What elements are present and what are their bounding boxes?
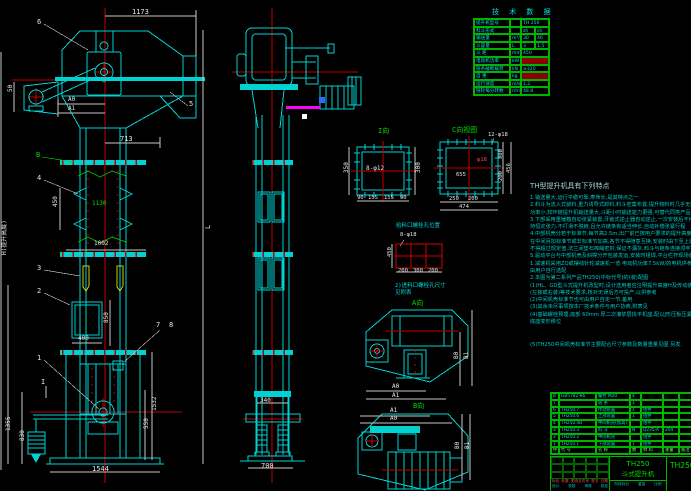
bom-cell: 4 bbox=[630, 393, 641, 400]
bom-cell: TH250.4B bbox=[559, 420, 596, 427]
bom-cell bbox=[641, 393, 663, 400]
tech-table-row: 斗容量L31.5 bbox=[474, 42, 549, 50]
note-line: (1)HL、GD型斗式提升机改型时,设计选用者应注明提升高度H及传动装置布置形式 bbox=[530, 283, 691, 290]
bom-cell bbox=[679, 420, 691, 427]
tech-table-cell: r/min bbox=[510, 87, 521, 95]
bom-cell bbox=[663, 407, 679, 414]
note-line: 功率小,较环链提升机输送量大,斗距小时输送能力更强,可替代同类产品 bbox=[530, 210, 691, 217]
bom-cell: 组件 bbox=[641, 413, 663, 420]
tech-table-cell: 48.8 bbox=[521, 87, 549, 95]
bom-cell: 1 bbox=[630, 441, 641, 448]
bom-cell: 8 bbox=[551, 393, 559, 400]
tech-table-cell bbox=[510, 27, 521, 35]
bom-cell: TH250.1 bbox=[559, 441, 596, 448]
product-name: 斗式提升机 bbox=[610, 468, 666, 481]
tech-table-cell: zh bbox=[521, 27, 535, 35]
bom-cell: TH250.6 bbox=[559, 413, 596, 420]
bom-cell bbox=[679, 434, 691, 441]
tech-table-cell: kg bbox=[510, 72, 521, 80]
tech-table-cell: m/s bbox=[510, 80, 521, 88]
bom-row: 3TH250.3料 斗NQ235-A204 bbox=[551, 427, 691, 434]
bom-row: 7链 条1 bbox=[551, 400, 691, 407]
bom-cell bbox=[679, 413, 691, 420]
notes-title: TH型提升机具有下列特点 bbox=[530, 181, 691, 191]
tech-table-row: 输送量m³/h3046 bbox=[474, 34, 549, 42]
bom-cell: Q235-A bbox=[641, 427, 663, 434]
title-block-right: TH250 bbox=[667, 457, 691, 491]
bom-cell: 1 bbox=[630, 400, 641, 407]
tech-table-cell bbox=[521, 57, 549, 65]
note-line: 底座变形移位 bbox=[530, 319, 691, 326]
tech-table-cell: ≥320 bbox=[521, 65, 549, 73]
tech-table-cell: 链条破断载荷 bbox=[474, 65, 510, 73]
tech-table-cell bbox=[521, 72, 549, 80]
bom-cell bbox=[679, 427, 691, 434]
tech-table-cell: 斗 距 bbox=[474, 49, 510, 57]
bom-cell bbox=[641, 400, 663, 407]
tech-table-row: 自 重kg bbox=[474, 72, 549, 80]
signature-label: 批准 bbox=[601, 484, 608, 489]
tech-table-cell: m³/h bbox=[510, 34, 521, 42]
tech-table-cell: TH 250 bbox=[521, 19, 549, 27]
signature-label: 设计 bbox=[552, 484, 559, 489]
revision-grid bbox=[551, 457, 609, 479]
bom-cell: 组件 bbox=[641, 434, 663, 441]
bom-cell: 组件 bbox=[641, 441, 663, 448]
head-view-b bbox=[358, 414, 470, 490]
tech-table-cell: 输送量 bbox=[474, 34, 510, 42]
bom-cell: 6 bbox=[551, 407, 559, 414]
bom-cell: 中间机壳 bbox=[596, 434, 630, 441]
tech-table-cell: 30 bbox=[521, 34, 535, 42]
tech-table-cell: 46 bbox=[535, 34, 549, 42]
note-line: (4)基础螺栓预埋,底部 60mm 厚二次灌浆层找平机座,配以J形压板压紧,以免… bbox=[530, 312, 691, 319]
note-line: 在中间另加标准节或非标准节加高,各节不得随意互换,安装时由下至上逐节找正,机壳中… bbox=[530, 239, 691, 246]
tech-table-cell: 运行速度 bbox=[474, 80, 510, 88]
bom-row: 1TH250.1下部装置1组件 bbox=[551, 441, 691, 448]
tech-table-row: 电动机功率kW bbox=[474, 57, 549, 65]
bom-cell: 1 bbox=[630, 407, 641, 414]
notes-block: TH型提升机具有下列特点 1.输送量大,运行平稳可靠,寿命长,是其特点之一2.料… bbox=[530, 181, 691, 350]
tech-table-cell: L bbox=[510, 42, 521, 50]
bom-cell: 5 bbox=[551, 413, 559, 420]
tech-table-cell: 提升机型号 bbox=[474, 19, 510, 27]
bom-cell bbox=[679, 393, 691, 400]
tech-table-row: 运行速度m/s1.2 bbox=[474, 80, 549, 88]
bom-cell: 1 bbox=[630, 413, 641, 420]
bom-row: 8GB5782-86螺栓 M204 bbox=[551, 393, 691, 400]
bom-cell: 传动装置 bbox=[596, 407, 630, 414]
product-model: TH250 bbox=[610, 460, 666, 468]
tech-table-cell: 料斗形式 bbox=[474, 27, 510, 35]
tech-data-table: 提升机型号TH 250料斗形式zhsh输送量m³/h3046斗容量L31.5斗 … bbox=[473, 18, 550, 96]
bom-cell: TH250.3 bbox=[559, 427, 596, 434]
tech-table-cell: 斗容量 bbox=[474, 42, 510, 50]
tech-table-cell: kN bbox=[510, 65, 521, 73]
bom-cell: 204 bbox=[663, 427, 679, 434]
bom-cell: TH250.2 bbox=[559, 434, 596, 441]
bom-header-row: 件号代 号名 称数材 料重量备注 bbox=[551, 447, 691, 454]
tech-table-cell: 电动机功率 bbox=[474, 57, 510, 65]
bom-cell: 组件 bbox=[641, 407, 663, 414]
tech-table-cell: 链轮每分转数 bbox=[474, 87, 510, 95]
tech-table-cell: 1.2 bbox=[521, 80, 549, 88]
note-line: 1.减速机采用ZQ或摆线针轮减速机一览 电动机功率7.5kW/的电机供参考 bbox=[530, 261, 691, 268]
bom-cell: 1 bbox=[551, 441, 559, 448]
tech-table-cell bbox=[510, 19, 521, 27]
detail-i-view bbox=[349, 141, 415, 201]
tech-table-cell: mm bbox=[510, 49, 521, 57]
bom-row: 5TH250.6上部装置1组件 bbox=[551, 413, 691, 420]
note-line: (3)其余未尽事项按本厂技术条件与用户协商,附表见 bbox=[530, 304, 691, 311]
tech-table-row: 斗 距mm450 bbox=[474, 49, 549, 57]
bom-cell bbox=[663, 400, 679, 407]
bom-cell: 名 称 bbox=[596, 447, 630, 454]
signature-labels: 设计校核审核批准 bbox=[551, 484, 609, 489]
bom-cell: 重量 bbox=[663, 447, 679, 454]
bom-cell: 上部装置 bbox=[596, 413, 630, 420]
bom-cell: 下部装置 bbox=[596, 441, 630, 448]
bom-cell: 链 条 bbox=[596, 400, 630, 407]
bom-cell bbox=[663, 441, 679, 448]
title-block-center: TH250 斗式提升机 阶段标记重量比例 bbox=[610, 457, 667, 491]
bom-cell: 中间机壳(加高) bbox=[596, 420, 630, 427]
note-line: 2.料斗为流入式装料,重力诱导式卸料,料斗密集布置,提升物料时几乎无回料和挖料现… bbox=[530, 202, 691, 209]
bom-cell bbox=[663, 420, 679, 427]
tech-table-cell: 3 bbox=[521, 42, 535, 50]
inlet-hole-detail bbox=[392, 240, 442, 272]
note-line: 2.本图为第二系列产品TH250(中标代号)的(装)配图 bbox=[530, 275, 691, 282]
bom-cell: N bbox=[630, 427, 641, 434]
tech-table-cell: 450 bbox=[521, 49, 549, 57]
bom-cell bbox=[630, 434, 641, 441]
bom-row: 6TH250.7传动装置1组件 bbox=[551, 407, 691, 414]
bom-cell: 料 斗 bbox=[596, 427, 630, 434]
bom-cell: 3 bbox=[551, 427, 559, 434]
bom-row: 4TH250.4B中间机壳(加高)组件 bbox=[551, 420, 691, 427]
bom-cell: 数 bbox=[630, 447, 641, 454]
tech-table-cell: 1.5 bbox=[535, 42, 549, 50]
tech-table-cell: kW bbox=[510, 57, 521, 65]
note-line-last: (5)TH250中间机壳标准节主要配合尺寸参数及数量重量见图 另发. bbox=[530, 342, 691, 349]
title-block: 标记处数更改文件号签字日期 设计校核审核批准 TH250 斗式提升机 阶段标记重… bbox=[550, 456, 691, 491]
bom-cell bbox=[559, 400, 596, 407]
signature-label: 校核 bbox=[568, 484, 575, 489]
bom-cell: 备注 bbox=[679, 447, 691, 454]
bom-cell bbox=[630, 420, 641, 427]
bom-table: 8GB5782-86螺栓 M2047链 条16TH250.7传动装置1组件5TH… bbox=[550, 392, 691, 455]
bom-cell: 2 bbox=[551, 434, 559, 441]
tech-table-row: 提升机型号TH 250 bbox=[474, 19, 549, 27]
bom-cell: 代 号 bbox=[559, 447, 596, 454]
note-line: 5.驱动平台与中部机壳及斜撑分开包装发运,安装时组焊,平台栏杆现场装配,到货后请… bbox=[530, 253, 691, 260]
drawing-number: TH250 bbox=[670, 461, 691, 470]
tech-table-row: 链轮每分转数r/min48.8 bbox=[474, 87, 549, 95]
detail-c-view bbox=[434, 136, 511, 210]
bom-cell: GB5782-86 bbox=[559, 393, 596, 400]
bom-cell bbox=[679, 400, 691, 407]
bom-cell bbox=[679, 441, 691, 448]
side-view bbox=[232, 8, 361, 483]
stage-label: 重量 bbox=[638, 481, 645, 487]
bom-cell bbox=[679, 407, 691, 414]
tech-table-row: 链条破断载荷kN≥320 bbox=[474, 65, 549, 73]
signature-label: 审核 bbox=[585, 484, 592, 489]
revision-block: 标记处数更改文件号签字日期 设计校核审核批准 bbox=[551, 457, 610, 491]
head-view-a bbox=[366, 310, 472, 399]
tech-table-cell: 自 重 bbox=[474, 72, 510, 80]
bom-cell: 件号 bbox=[551, 447, 559, 454]
stage-labels: 阶段标记重量比例 bbox=[610, 481, 666, 487]
cad-canvas: 117365A0A150713B44501130100232H(提升高度)400… bbox=[0, 0, 691, 491]
bom-row: 2TH250.2中间机壳组件 bbox=[551, 434, 691, 441]
stage-label: 比例 bbox=[654, 481, 661, 487]
bom-cell: TH250.7 bbox=[559, 407, 596, 414]
tech-table-row: 料斗形式zhsh bbox=[474, 27, 549, 35]
bom-cell: 材 料 bbox=[641, 447, 663, 454]
note-line: 4.中部机壳分若干标准节,每节高2.5m,出厂前已按用户要求的提升高度H配齐,用… bbox=[530, 231, 691, 238]
bom-cell: 4 bbox=[551, 420, 559, 427]
bom-cell bbox=[663, 393, 679, 400]
bom-cell bbox=[663, 413, 679, 420]
tech-table-cell: sh bbox=[535, 27, 549, 35]
front-view bbox=[1, 8, 205, 483]
bom-cell: 螺栓 M20 bbox=[596, 393, 630, 400]
bom-cell: 组件 bbox=[641, 420, 663, 427]
bom-cell bbox=[663, 434, 679, 441]
stage-label: 阶段标记 bbox=[615, 481, 629, 487]
bom-cell: 7 bbox=[551, 400, 559, 407]
revision-label: 签字 bbox=[591, 479, 598, 484]
